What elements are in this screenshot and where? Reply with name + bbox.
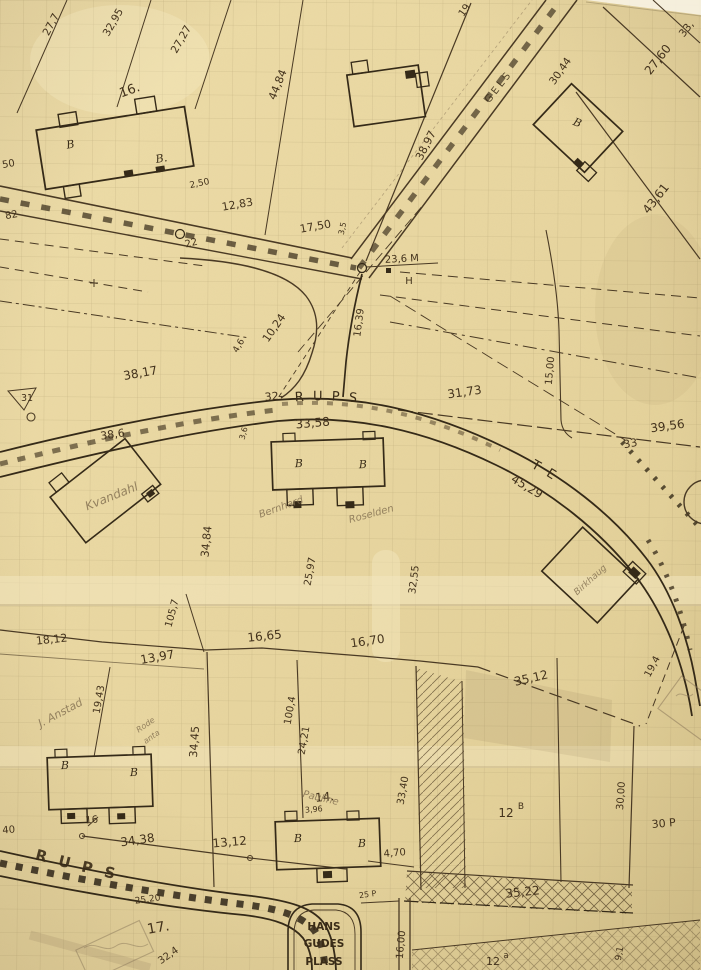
screenshot-root: HAGERUPS GATE RIEGELS HAGERUPS HANS GUDE… <box>0 0 701 970</box>
measurement-label: 23,6 M <box>385 253 420 266</box>
paper-vignette <box>0 0 701 970</box>
measurement-label: 30 P <box>651 816 677 831</box>
crease-line-1 <box>0 604 701 606</box>
measurement-label: 50 <box>1 158 15 171</box>
survey-square-marker <box>386 268 391 273</box>
hatched-strip-vertical <box>416 668 466 888</box>
building-letter: B <box>60 759 70 772</box>
measurement-label: H <box>405 276 413 287</box>
measurement-label: 33 <box>622 436 638 451</box>
building-letter: B <box>357 458 367 471</box>
plot-number-12a: 12 <box>486 955 500 968</box>
measurement-label: 40 <box>2 824 16 836</box>
measurement-label: 13,12 <box>212 834 247 851</box>
measurement-label: 32- <box>264 389 283 404</box>
measurement-label: 16 <box>85 814 99 826</box>
building-letter: B <box>293 457 303 470</box>
plot-number-12a-sup: a <box>503 951 508 961</box>
plot-number-12b: 12 <box>498 806 513 820</box>
measurement-label: 3,96 <box>305 804 324 815</box>
plot-number-12b-sup: B <box>518 802 524 812</box>
building-letter: B <box>293 832 303 845</box>
crease-line-2 <box>0 766 701 768</box>
measurement-label: 31 <box>21 393 33 404</box>
street-name-hans-gudes-3: PLASS <box>305 956 342 968</box>
building-letter: B. <box>154 151 169 166</box>
measurement-label: 33,58 <box>295 415 330 432</box>
measurement-label: 34,45 <box>187 726 202 758</box>
measurement-label: 30,00 <box>615 781 628 810</box>
street-name-hans-gudes-1: HANS <box>307 921 340 933</box>
building-letter: B <box>357 837 367 850</box>
cadastral-map-scan: HAGERUPS GATE RIEGELS HAGERUPS HANS GUDE… <box>0 0 701 970</box>
measurement-label: 4,70 <box>383 847 406 860</box>
measurement-label: 82 <box>4 209 18 222</box>
street-name-hans-gudes-2: GUDES <box>304 938 345 950</box>
building-letter: B <box>129 766 139 779</box>
